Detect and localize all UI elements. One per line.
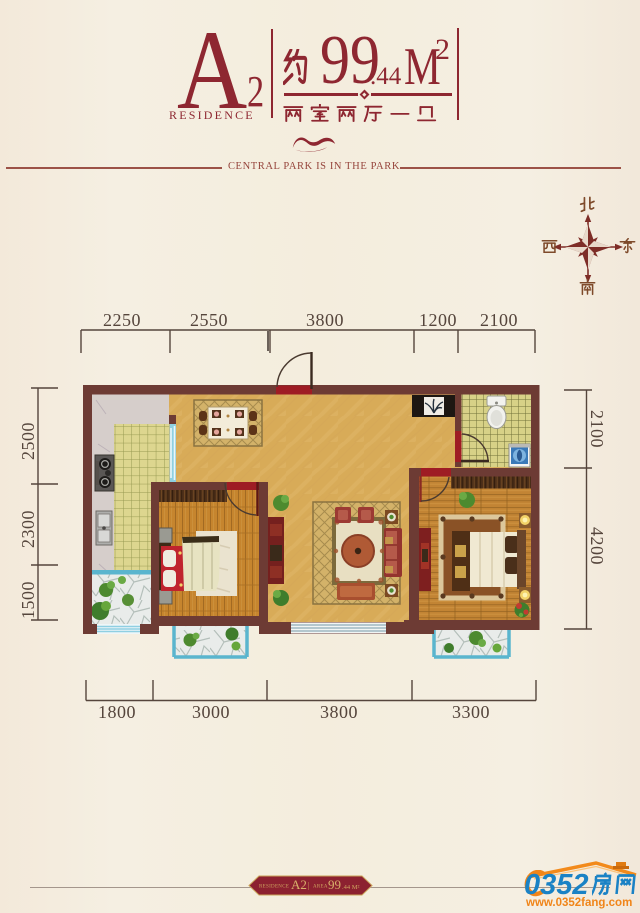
svg-text:1200: 1200	[419, 310, 457, 330]
svg-text:1500: 1500	[18, 581, 38, 619]
svg-text:4200: 4200	[587, 527, 607, 565]
svg-text:2550: 2550	[190, 310, 228, 330]
svg-text:|: |	[308, 881, 310, 890]
svg-text:AREA: AREA	[313, 885, 328, 890]
svg-text:3000: 3000	[192, 702, 230, 722]
svg-text:1800: 1800	[98, 702, 136, 722]
svg-text:99: 99	[328, 877, 341, 892]
svg-text:2250: 2250	[103, 310, 141, 330]
svg-text:2100: 2100	[480, 310, 518, 330]
svg-text:2500: 2500	[18, 422, 38, 460]
svg-text:2300: 2300	[18, 510, 38, 548]
svg-text:.44 M²: .44 M²	[342, 884, 360, 891]
svg-text:RESIDENCE: RESIDENCE	[259, 885, 289, 890]
svg-text:3800: 3800	[306, 310, 344, 330]
svg-text:3300: 3300	[452, 702, 490, 722]
svg-text:A2: A2	[291, 877, 307, 892]
svg-text:3800: 3800	[320, 702, 358, 722]
svg-text:2100: 2100	[587, 410, 607, 448]
